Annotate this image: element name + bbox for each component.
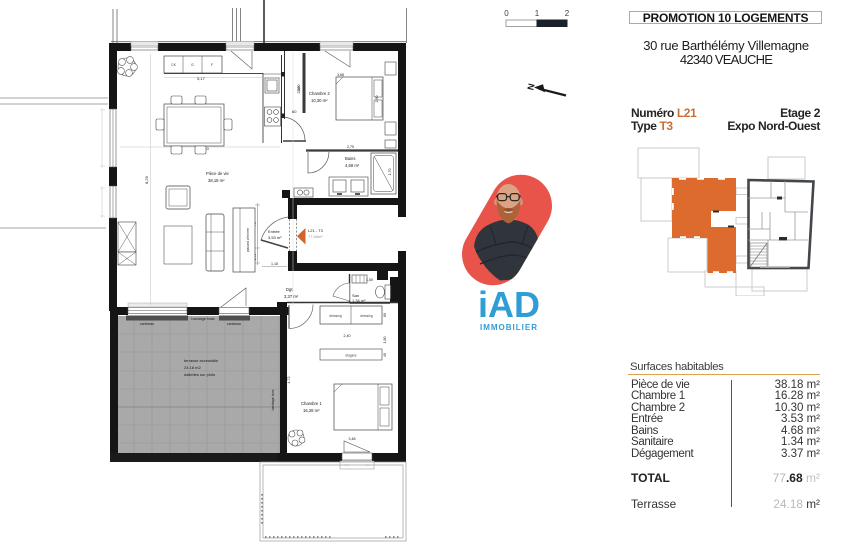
svg-text:terrasse accessible: terrasse accessible [184,358,219,363]
svg-text:1,18: 1,18 [271,262,278,266]
svg-text:Pièce de vie: Pièce de vie [206,171,229,176]
svg-text:1: 1 [535,9,540,18]
svg-text:Chambre 1: Chambre 1 [301,401,322,406]
svg-text:bardage bois: bardage bois [191,316,214,321]
svg-text:caniveau: caniveau [227,322,241,326]
svg-text:2,40: 2,40 [344,334,351,338]
svg-text:0: 0 [504,9,509,18]
svg-text:10,30 m²: 10,30 m² [311,98,328,103]
svg-text:4,72: 4,72 [287,377,291,384]
svg-text:dressing: dressing [329,314,342,318]
svg-text:3,48: 3,48 [349,437,356,441]
svg-text:N: N [525,82,536,91]
svg-text:77.68m²: 77.68m² [308,234,323,239]
svg-text:Entrée: Entrée [268,229,281,234]
svg-text:3,53 m²: 3,53 m² [268,235,282,240]
svg-text:3,68: 3,68 [337,73,344,77]
svg-text:8,29: 8,29 [144,175,149,184]
svg-text:L21 - T3: L21 - T3 [308,228,324,233]
svg-text:CK: CK [171,63,176,67]
svg-text:G: G [191,63,194,67]
svg-text:Chambre 2: Chambre 2 [309,91,330,96]
svg-text:24.18 m2: 24.18 m2 [184,365,201,370]
svg-text:bardage bois: bardage bois [271,389,275,410]
svg-text:IMMOBILIER: IMMOBILIER [480,323,538,332]
svg-text:2,75: 2,75 [347,145,354,149]
svg-text:4,68 m²: 4,68 m² [345,163,360,168]
svg-text:40: 40 [383,353,387,357]
svg-text:38,18 m²: 38,18 m² [208,178,225,183]
svg-text:dallettes sur plots: dallettes sur plots [184,372,215,377]
svg-text:5,17: 5,17 [197,76,206,81]
svg-text:1,80: 1,80 [383,337,387,344]
svg-text:dressing: dressing [360,314,373,318]
svg-text:2,80: 2,80 [297,87,301,94]
svg-text:Dgt: Dgt [286,287,293,292]
svg-text:F: F [211,63,213,67]
svg-text:2,90: 2,90 [375,96,379,103]
svg-text:Bains: Bains [345,156,355,161]
svg-text:iAD: iAD [478,284,540,325]
svg-text:60: 60 [292,109,297,114]
svg-text:étagère: étagère [345,354,356,358]
svg-text:2: 2 [565,9,570,18]
svg-text:1,50: 1,50 [366,278,373,282]
svg-text:1,70: 1,70 [388,169,392,176]
svg-text:placard d'entrée: placard d'entrée [246,228,250,252]
svg-text:3,37 m²: 3,37 m² [284,294,299,299]
svg-text:60: 60 [383,313,387,317]
svg-text:16,28 m²: 16,28 m² [303,408,320,413]
svg-text:1,34 m²: 1,34 m² [352,298,366,303]
svg-text:caniveau: caniveau [140,322,154,326]
